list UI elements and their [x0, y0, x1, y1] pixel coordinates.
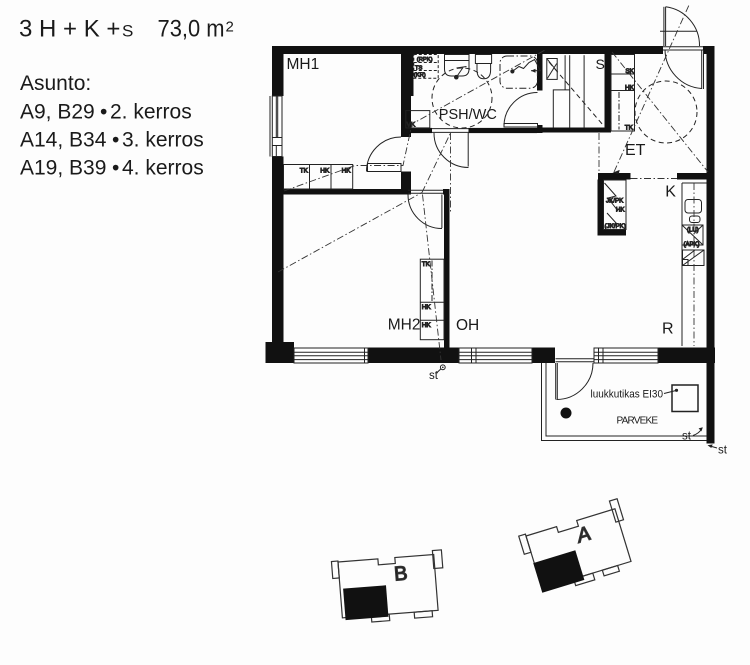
- svg-text:Asunto:: Asunto:: [20, 72, 91, 95]
- svg-text:OH: OH: [456, 317, 479, 334]
- svg-text:HK: HK: [422, 304, 432, 311]
- svg-text:K: K: [665, 184, 676, 201]
- svg-text:HK: HK: [342, 168, 352, 175]
- svg-text:JK/PK: JK/PK: [606, 198, 624, 205]
- svg-text:MH1: MH1: [287, 56, 320, 73]
- svg-text:B: B: [393, 563, 408, 586]
- svg-text:(RPK): (RPK): [417, 57, 433, 63]
- svg-text:st: st: [718, 445, 728, 457]
- svg-text:luukkutikas EI30: luukkutikas EI30: [591, 389, 664, 401]
- svg-text:HK: HK: [616, 207, 625, 214]
- svg-text:3 H + K +: 3 H + K +: [19, 16, 120, 43]
- svg-text:A: A: [573, 523, 593, 548]
- svg-text:S: S: [122, 22, 133, 41]
- svg-text:MH2: MH2: [388, 317, 421, 334]
- svg-text:(APK): (APK): [684, 242, 700, 248]
- svg-text:73,0 m: 73,0 m: [158, 16, 225, 43]
- svg-text:A19, B39 •4. kerros: A19, B39 •4. kerros: [20, 157, 204, 180]
- svg-text:st: st: [429, 370, 439, 382]
- svg-text:HK: HK: [422, 322, 432, 329]
- svg-text:TK: TK: [300, 168, 309, 175]
- svg-text:TS: TS: [415, 65, 423, 71]
- svg-text:HK: HK: [320, 168, 330, 175]
- svg-text:HK: HK: [625, 85, 635, 92]
- svg-text:st: st: [682, 431, 692, 443]
- svg-text:TK: TK: [422, 261, 431, 268]
- svg-text:S: S: [596, 56, 605, 72]
- svg-text:A14, B34 •3. kerros: A14, B34 •3. kerros: [20, 129, 204, 152]
- svg-text:2: 2: [226, 19, 234, 36]
- svg-text:(KR): (KR): [414, 73, 426, 79]
- svg-text:PARVEKE: PARVEKE: [617, 416, 659, 427]
- svg-text:(LU): (LU): [687, 227, 699, 233]
- svg-text:A9, B29 •2. kerros: A9, B29 •2. kerros: [20, 101, 192, 124]
- svg-text:R: R: [662, 321, 674, 338]
- svg-text:(JK/PK): (JK/PK): [605, 223, 626, 230]
- svg-text:PSH/WC: PSH/WC: [439, 107, 497, 123]
- svg-text:ET: ET: [625, 142, 646, 159]
